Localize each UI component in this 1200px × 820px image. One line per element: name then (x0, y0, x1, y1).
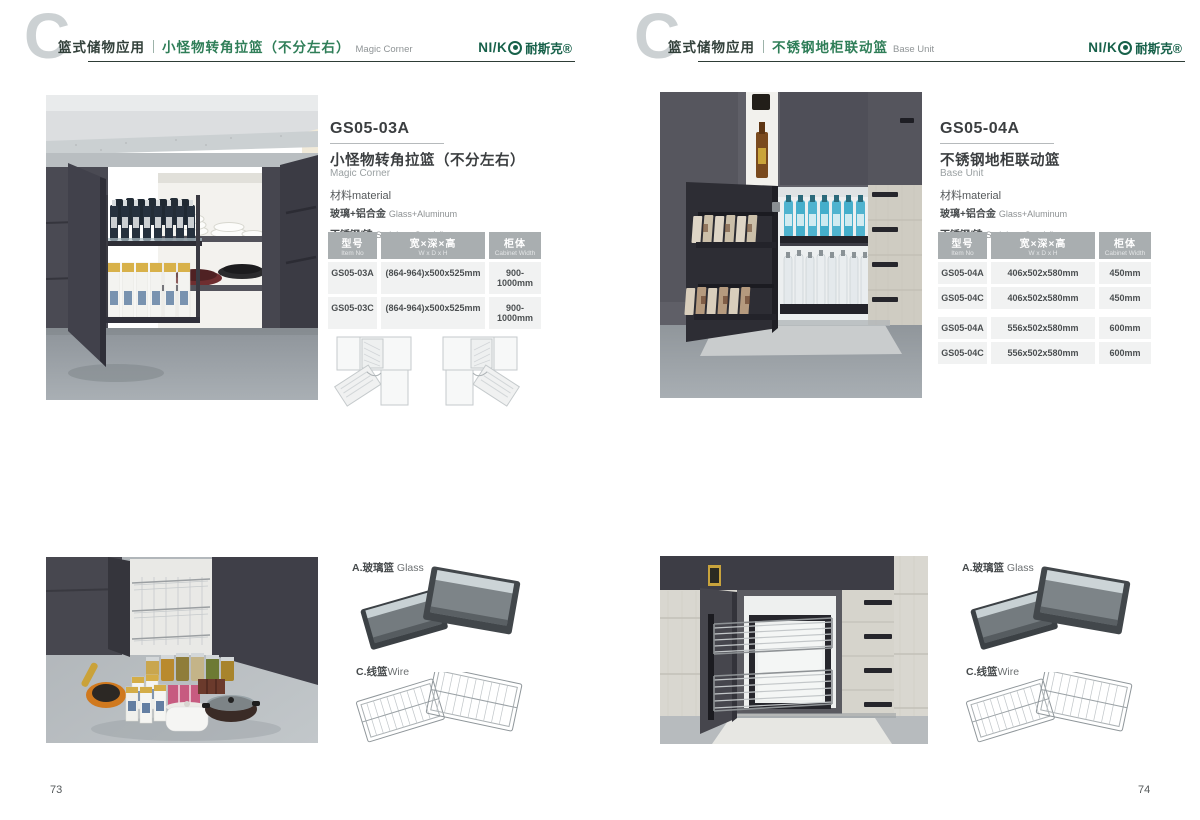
header-rule (698, 61, 1185, 62)
header-rule (88, 61, 575, 62)
product-code-rule (940, 143, 1054, 144)
catalog-page-left: C 篮式储物应用 小怪物转角拉篮（不分左右） Magic Corner NI/K… (0, 0, 590, 820)
lifestyle-photo-base-unit (660, 556, 928, 744)
wire-basket-label: C.线篮Wire (356, 664, 409, 679)
section-title-cn: 小怪物转角拉篮（不分左右） (162, 36, 351, 56)
material-label: 材料material (940, 187, 1001, 203)
spec-table-header: 型号Item No 宽×深×高W x D x H 柜体Cabinet Width (328, 232, 541, 259)
brand-logo-latin: NI/K (1088, 40, 1117, 55)
brand-logo-cn: 耐斯克® (1135, 38, 1182, 57)
material-item: 玻璃+铝合金Glass+Aluminum (330, 204, 457, 222)
product-photo-magic-corner (46, 95, 318, 400)
brand-logo-latin: NI/K (478, 40, 507, 55)
header-divider (763, 40, 764, 53)
glass-basket-illustration (958, 566, 1143, 666)
section-title-cn: 不锈钢地柜联动篮 (772, 36, 888, 56)
spec-table: 型号Item No 宽×深×高W x D x H 柜体Cabinet Width… (328, 232, 541, 332)
product-code: GS05-04A (940, 120, 1020, 138)
product-name-en: Magic Corner (330, 168, 390, 179)
section-title-en: Base Unit (893, 44, 934, 55)
brand-logo: NI/K 耐斯克® (478, 38, 572, 57)
section-title-en: Magic Corner (356, 44, 413, 55)
product-name-cn: 不锈钢地柜联动篮 (940, 149, 1060, 170)
corner-layout-diagrams (334, 322, 520, 408)
wire-basket-illustration (348, 672, 533, 750)
table-row: GS05-04C 556x502x580mm 600mm (938, 342, 1151, 364)
diagram-corner-left-hand (334, 322, 414, 408)
diagram-corner-right-hand (440, 322, 520, 408)
header-divider (153, 40, 154, 53)
spec-table: 型号Item No 宽×深×高W x D x H 柜体Cabinet Width… (938, 232, 1151, 367)
glass-basket-label: A.玻璃篮 Glass (352, 560, 424, 575)
product-code: GS05-03A (330, 120, 410, 138)
material-item: 玻璃+铝合金Glass+Aluminum (940, 204, 1067, 222)
table-row: GS05-04A 406x502x580mm 450mm (938, 262, 1151, 284)
table-row: GS05-04A 556x502x580mm 600mm (938, 317, 1151, 339)
brand-logo-o-icon (1118, 41, 1132, 55)
wire-basket-label: C.线篮Wire (966, 664, 1019, 679)
category-title: 篮式储物应用 (668, 36, 755, 56)
product-photo-base-unit (660, 92, 922, 398)
product-code-rule (330, 143, 444, 144)
wire-basket-illustration (958, 672, 1143, 750)
page-header: 篮式储物应用 小怪物转角拉篮（不分左右） Magic Corner (58, 36, 413, 56)
page-number: 73 (50, 784, 62, 796)
brand-logo-o-icon (508, 41, 522, 55)
glass-basket-illustration (348, 566, 533, 666)
product-name-cn: 小怪物转角拉篮（不分左右） (330, 149, 525, 170)
catalog-page-right: C 篮式储物应用 不锈钢地柜联动篮 Base Unit NI/K 耐斯克® (610, 0, 1200, 820)
spec-table-header: 型号Item No 宽×深×高W x D x H 柜体Cabinet Width (938, 232, 1151, 259)
brand-logo: NI/K 耐斯克® (1088, 38, 1182, 57)
lifestyle-photo-corner-baskets (46, 557, 318, 743)
page-number: 74 (1138, 784, 1150, 796)
glass-basket-label: A.玻璃篮 Glass (962, 560, 1034, 575)
product-name-en: Base Unit (940, 168, 983, 179)
material-label: 材料material (330, 187, 391, 203)
brand-logo-cn: 耐斯克® (525, 38, 572, 57)
page-header: 篮式储物应用 不锈钢地柜联动篮 Base Unit (668, 36, 934, 56)
category-title: 篮式储物应用 (58, 36, 145, 56)
table-row: GS05-04C 406x502x580mm 450mm (938, 287, 1151, 309)
table-row: GS05-03A (864-964)x500x525mm 900-1000mm (328, 262, 541, 294)
